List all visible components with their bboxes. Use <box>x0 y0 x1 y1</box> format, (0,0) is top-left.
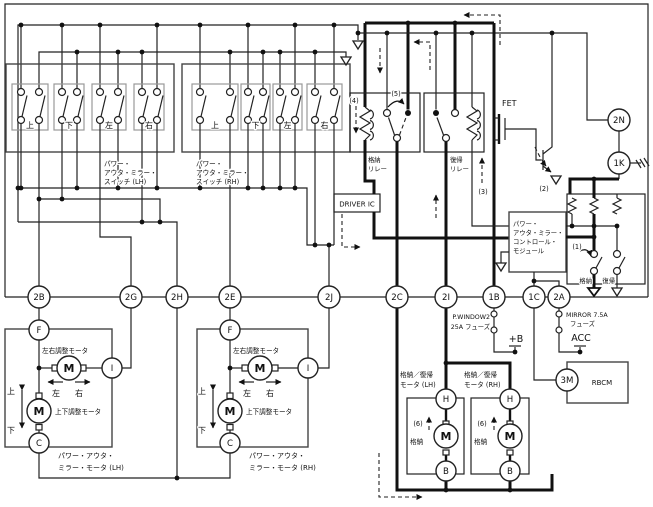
annotation-1: (1) <box>572 243 581 251</box>
module-label3: コントロール・ <box>513 238 557 246</box>
switch-symbol <box>59 89 69 124</box>
module-label1: パワー・ <box>513 220 538 228</box>
right-dir-label-lh: 右 <box>75 388 83 398</box>
switch-asm-lh-line2: アウタ・ミラー・ <box>104 168 157 177</box>
wire-junction <box>592 224 597 229</box>
motor-m-lr-rh: M <box>255 362 266 375</box>
wire-junction <box>60 197 65 202</box>
wire-junction <box>453 21 458 26</box>
wire-junction <box>228 50 233 55</box>
pwindow-fuse-label1: P.WINDOW2 <box>452 314 490 321</box>
retract-motor-lh <box>407 398 464 474</box>
wire-junction <box>19 186 24 191</box>
return-relay-label1: 復帰 <box>450 155 463 164</box>
terminal-h-rh: H <box>507 395 513 405</box>
mirror-fuse-label2: フューズ <box>570 319 595 328</box>
switch-symbol <box>227 89 237 124</box>
wire-junction <box>444 361 449 366</box>
terminal-i-rh: I <box>307 364 310 374</box>
down-dir-label-rh: 下 <box>198 426 206 435</box>
wire-junction <box>356 31 361 36</box>
terminal-f-lh: F <box>37 326 42 336</box>
wire-junction <box>158 220 163 225</box>
mirror-motor-rh-label1: パワー・アウタ・ <box>249 451 305 460</box>
switch-symbol <box>312 89 322 124</box>
switch-symbol <box>331 89 341 124</box>
switch-symbol <box>36 89 46 124</box>
switch-asm-rh-line1: パワー・ <box>196 160 222 168</box>
connector-2g: 2G <box>125 293 137 303</box>
switch-left-label-lh: 左 <box>105 120 113 130</box>
connector-2n: 2N <box>613 116 625 126</box>
annotation-6-rh: (6) <box>477 420 486 428</box>
wire-junction <box>385 31 390 36</box>
switch-left-label-rh: 左 <box>284 120 292 130</box>
connector-2c: 2C <box>391 293 402 303</box>
wire-junction <box>140 50 145 55</box>
wire-junction <box>550 31 555 36</box>
mirror-switch-assembly-lh <box>6 64 174 152</box>
retract-motor-rh-label2: モータ (RH) <box>464 380 501 389</box>
switch-right-label-lh: 右 <box>145 120 153 130</box>
switch-symbol <box>139 89 149 124</box>
wire-junction <box>592 235 597 240</box>
motor-m-lr-lh: M <box>64 362 75 375</box>
fet-symbol <box>494 23 541 286</box>
store-relay-label1: 格納 <box>368 155 381 164</box>
motor-m-ud-rh: M <box>225 405 236 418</box>
connector-1c: 1C <box>528 293 539 303</box>
fet-label: FET <box>502 99 517 108</box>
retract-motor-lh-label2: モータ (LH) <box>400 380 436 389</box>
wire-junction <box>246 186 251 191</box>
switch-up-label-lh: 上 <box>26 121 34 130</box>
annotation-2: (2) <box>539 185 548 193</box>
connector-2j: 2J <box>325 293 333 303</box>
switch-symbol <box>292 89 302 124</box>
switch-down-label-lh: 下 <box>65 121 73 130</box>
wire-junction <box>175 476 180 481</box>
pwindow-fuse-label2: 25A フューズ <box>451 322 490 331</box>
wire-junction <box>278 50 283 55</box>
left-dir-label-lh: 左 <box>52 388 60 398</box>
wire-junction <box>570 224 575 229</box>
wire-junction <box>278 186 283 191</box>
acc-label: ACC <box>571 333 591 344</box>
switch-symbol <box>97 89 107 124</box>
switch-up-label-rh: 上 <box>211 121 219 130</box>
terminal-f-rh: F <box>228 326 233 336</box>
module-label2: アウタ・ミラー・ <box>513 228 563 237</box>
page-link-arrows <box>341 41 363 65</box>
connector-2e: 2E <box>225 293 236 303</box>
store-switch-label: 格納 <box>579 276 592 285</box>
plus-b-label: +B <box>509 334 523 345</box>
wire-junction <box>19 23 24 28</box>
wire-junction <box>434 31 439 36</box>
lr-adjust-motor-label-rh: 左右調整モータ <box>233 346 279 355</box>
wire-junction <box>313 243 318 248</box>
wire-junction <box>313 50 318 55</box>
module-label4: モジュール <box>513 247 544 255</box>
mirror-motor-rh-label2: ミラー・モータ (RH) <box>249 463 316 472</box>
annotation-5: (5) <box>391 90 400 98</box>
connector-3m: 3M <box>561 376 574 386</box>
right-sense-network <box>566 131 649 296</box>
wire-junction <box>198 186 203 191</box>
switch-symbol <box>154 89 164 124</box>
switch-asm-rh-line3: スイッチ (RH) <box>196 178 239 186</box>
wire-junction <box>532 279 537 284</box>
ud-adjust-motor-label-lh: 上下調整モータ <box>55 407 101 416</box>
retract-dir-label-lh: 格納 <box>410 437 424 446</box>
wiring-diagram: 上 下 左 右 上 下 左 右 パワー・ アウタ・ミラー・ スイッチ (LH) … <box>0 0 653 507</box>
up-dir-label-rh: 上 <box>198 387 206 396</box>
wire-junction <box>75 50 80 55</box>
retract-motor-m-lh: M <box>441 430 452 443</box>
terminal-c-lh: C <box>36 439 42 449</box>
connector-2a: 2A <box>553 293 564 303</box>
wire-junction <box>140 220 145 225</box>
return-relay-label2: リレー <box>450 166 469 173</box>
wire-junction <box>508 488 513 493</box>
switch-asm-lh-line1: パワー・ <box>104 160 130 168</box>
up-dir-label-lh: 上 <box>7 387 15 396</box>
wire-junction <box>37 197 42 202</box>
wire-junction <box>293 23 298 28</box>
wire-junction <box>116 186 121 191</box>
down-dir-label-lh: 下 <box>7 426 15 435</box>
right-dir-label-rh: 右 <box>266 388 274 398</box>
terminal-h-lh: H <box>443 395 449 405</box>
switch-symbol <box>260 89 270 124</box>
wire-junction <box>228 366 233 371</box>
retract-dir-label-rh: 格納 <box>474 437 488 446</box>
switch-symbol <box>18 89 28 124</box>
wire-junction <box>60 23 65 28</box>
connector-2b: 2B <box>33 293 44 303</box>
annotation-4: (4) <box>349 97 358 105</box>
switch-symbol <box>197 89 207 124</box>
terminal-b-rh: B <box>507 467 513 477</box>
wire-junction <box>198 23 203 28</box>
connector-1b: 1B <box>488 293 499 303</box>
wire-junction <box>98 23 103 28</box>
driver-ic-label: DRIVER IC <box>339 201 375 209</box>
wire-junction <box>406 21 411 26</box>
retract-motor-m-rh: M <box>505 430 516 443</box>
relay-feed-rails <box>358 23 608 120</box>
switch-symbol <box>245 89 255 124</box>
terminal-i-lh: I <box>111 364 114 374</box>
wire-junction <box>592 177 597 182</box>
connector-1k: 1K <box>613 159 624 169</box>
motor-m-ud-lh: M <box>34 405 45 418</box>
retract-motor-rh-label1: 格納／復帰 <box>464 370 497 379</box>
wire-junction <box>615 224 620 229</box>
left-dir-label-rh: 左 <box>243 388 251 398</box>
store-relay-label2: リレー <box>368 166 387 173</box>
switch-down-label-rh: 下 <box>252 121 260 130</box>
transistor-symbol <box>535 33 561 184</box>
mirror-motor-lh-label1: パワー・アウタ・ <box>58 451 114 460</box>
switch-symbol <box>277 89 287 124</box>
terminal-b-lh: B <box>443 467 449 477</box>
retract-motor-rh <box>471 398 529 474</box>
wiring-diagram-page: 上 下 左 右 上 下 左 右 パワー・ アウタ・ミラー・ スイッチ (LH) … <box>0 0 653 507</box>
return-coil-wire <box>472 140 509 226</box>
wire-junction <box>155 23 160 28</box>
retract-motor-lh-label1: 格納／復帰 <box>400 370 433 379</box>
switch-asm-rh-line2: アウタ・ミラー・ <box>196 168 249 177</box>
wire-junction <box>116 50 121 55</box>
annotation-3: (3) <box>478 188 487 196</box>
wire-junction <box>578 350 583 355</box>
wire-junction <box>261 50 266 55</box>
wire-junction <box>155 186 160 191</box>
wire-junction <box>444 488 449 493</box>
annotation-6-lh: (6) <box>413 420 422 428</box>
ud-adjust-motor-label-rh: 上下調整モータ <box>246 407 292 416</box>
wire-junction <box>37 366 42 371</box>
mirror-motor-lh-label2: ミラー・モータ (LH) <box>58 463 124 472</box>
terminal-c-rh: C <box>227 439 233 449</box>
switch-symbol <box>115 89 125 124</box>
return-switch-label: 復帰 <box>602 276 615 285</box>
rbcm-label: RBCM <box>592 379 612 387</box>
connector-2i: 2I <box>442 293 450 303</box>
switch-wire-mesh <box>18 124 334 287</box>
switch-right-label-rh: 右 <box>321 120 329 130</box>
wire-junction <box>261 186 266 191</box>
wire-junction <box>513 350 518 355</box>
switch-symbol <box>74 89 84 124</box>
mirror-fuse-label1: MIRROR 7.5A <box>566 312 608 319</box>
switch-asm-lh-line3: スイッチ (LH) <box>104 178 146 186</box>
wire-junction <box>327 243 332 248</box>
wire-junction <box>75 186 80 191</box>
switch-contacts <box>18 89 341 124</box>
wire-junction <box>470 31 475 36</box>
wire-junction <box>332 23 337 28</box>
lr-adjust-motor-label-lh: 左右調整モータ <box>42 346 88 355</box>
wire-junction <box>246 23 251 28</box>
connector-2h: 2H <box>171 293 183 303</box>
wire-junction <box>293 186 298 191</box>
